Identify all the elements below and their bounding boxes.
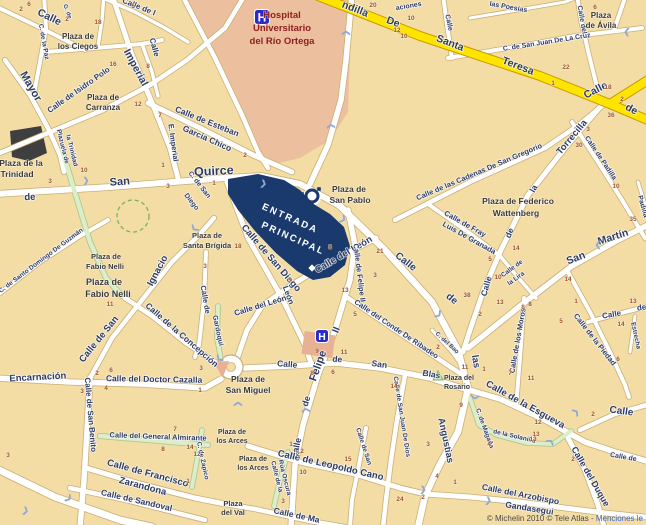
house-number: 3	[166, 183, 170, 190]
house-number: 18	[234, 243, 242, 250]
house-number: 2	[478, 311, 482, 318]
map-attribution: © Michelin 2010 © Tele Atlas - Menciones…	[487, 514, 643, 523]
plaza-label: Plaza	[591, 11, 612, 20]
house-number: 9	[459, 402, 463, 409]
plaza-label: San Miguel	[226, 385, 271, 395]
house-number: 11	[462, 364, 469, 371]
house-number: 11	[341, 349, 348, 356]
plaza-label: Plaza de	[87, 93, 120, 102]
house-number: 16	[109, 61, 117, 68]
house-number: 6	[331, 369, 335, 376]
house-number: 6	[593, 4, 597, 11]
house-number: 8	[310, 370, 314, 377]
plaza-label: Plaza de	[62, 32, 95, 41]
house-number: 8	[528, 301, 532, 308]
house-number: 3	[281, 498, 285, 505]
oneway-arrow-icon: ❯	[83, 176, 90, 186]
plaza-label: los Arces	[216, 438, 247, 445]
house-number: 14	[390, 383, 398, 390]
plaza-label: Fabio Nelli	[86, 262, 124, 271]
house-number: 18	[604, 84, 612, 91]
house-number: 9	[315, 348, 319, 355]
house-number: 36	[607, 112, 615, 119]
house-number: 14	[512, 245, 520, 252]
plaza-label: Plaza de la	[0, 158, 43, 168]
house-number: 2	[300, 448, 304, 455]
house-number: 1	[186, 478, 190, 485]
house-number: 1	[212, 180, 216, 187]
house-number: 13	[496, 299, 504, 306]
house-number: 1	[482, 366, 486, 373]
plaza-label: Plaza de	[86, 277, 122, 287]
hospital-icon: H	[316, 330, 329, 343]
plaza-label: Plaza de	[332, 184, 366, 194]
oneway-arrow-icon: ❯	[419, 485, 427, 496]
house-number: 2	[571, 456, 575, 463]
house-number: 2	[436, 344, 440, 351]
house-number: 35	[629, 216, 637, 223]
house-number: 6	[109, 367, 113, 374]
house-number: 18	[94, 19, 102, 26]
house-number: 7	[173, 426, 177, 433]
house-number: 10	[299, 469, 307, 476]
street-label: de	[636, 302, 646, 313]
house-number: 7	[288, 278, 292, 285]
house-number: 13	[629, 298, 637, 305]
house-number: 1	[161, 162, 165, 169]
house-number: 11	[107, 301, 114, 308]
oneway-arrow-icon: ❯	[233, 401, 243, 408]
oneway-arrow-icon: ❯	[326, 122, 337, 130]
house-number: 12	[534, 419, 542, 426]
house-number: 15	[344, 456, 352, 463]
oneway-arrow-icon: ❯	[595, 240, 602, 250]
house-number: 3	[373, 272, 377, 279]
house-number: 1	[574, 298, 578, 305]
house-number: 2	[19, 6, 23, 13]
street-label: de	[24, 192, 36, 204]
legal-link[interactable]: Menciones le	[596, 514, 643, 523]
house-number: 14	[564, 276, 572, 283]
plaza-label: Carranza	[86, 103, 121, 112]
house-number: 22	[562, 64, 570, 71]
oneway-arrow-icon: ❯	[623, 27, 631, 38]
house-number: 4	[104, 385, 108, 392]
house-number: 2	[243, 152, 247, 159]
house-number: 10	[612, 183, 620, 190]
plaza-label: Santa Brígida	[183, 241, 232, 250]
plaza-label: Rosario	[444, 384, 470, 391]
house-number: 2	[421, 494, 425, 501]
house-number: 10	[400, 33, 408, 40]
oneway-arrow-icon: ❯	[341, 30, 351, 37]
house-number: 3	[6, 452, 10, 459]
plaza-label: Plaza del	[444, 375, 474, 382]
plaza-label: Plaza	[223, 499, 243, 508]
house-number: 20	[369, 2, 377, 9]
house-number: 5	[488, 256, 492, 263]
map-canvas[interactable]: HH CalleC. de la PazG. deCalle de ICalle…	[0, 0, 646, 525]
house-number: 6	[616, 356, 620, 363]
oneway-arrow-icon: ❯	[470, 393, 481, 401]
house-number: 14	[186, 444, 194, 451]
street-label: las	[469, 354, 482, 369]
house-number: 3	[80, 388, 84, 395]
copyright-text: © Michelin 2010 © Tele Atlas -	[487, 514, 596, 523]
house-number: 7	[158, 112, 162, 119]
house-number: 10	[407, 15, 415, 22]
oneway-arrow-icon: ❯	[301, 406, 312, 414]
house-number: 8	[328, 244, 332, 251]
svg-text:H: H	[318, 332, 326, 343]
house-number: 4	[435, 473, 439, 480]
house-number: 14	[617, 321, 625, 328]
house-number: 3	[48, 178, 52, 185]
house-number: 3	[426, 441, 430, 448]
plaza-label: los Arces	[237, 465, 268, 472]
house-number: 11	[528, 375, 535, 382]
house-number: 2	[65, 16, 69, 23]
plaza-label: San Pablo	[329, 195, 370, 205]
plaza-label: Trinidad	[0, 169, 33, 179]
house-number: 8	[161, 446, 165, 453]
house-number: 8	[146, 63, 150, 70]
house-number: 1	[551, 80, 555, 87]
plaza-label: Plaza de	[91, 252, 121, 261]
house-number: 1	[289, 441, 293, 448]
house-number: 5	[353, 311, 357, 318]
street-label: San	[109, 175, 130, 188]
house-number: 38	[463, 292, 471, 299]
street-label: Calle	[277, 358, 298, 370]
hospital-name: Universitario	[253, 23, 311, 34]
house-number: 8	[521, 304, 525, 311]
house-number: 3	[586, 126, 590, 133]
house-number: 30	[575, 142, 583, 149]
house-number: 12	[193, 451, 201, 458]
house-number: 3	[199, 365, 203, 372]
house-number: 13	[341, 287, 349, 294]
house-number: 6	[27, 1, 31, 8]
plaza-label: del Val	[221, 508, 245, 517]
house-number: 3	[203, 263, 207, 270]
house-number: 5	[131, 3, 135, 10]
house-number: 21	[376, 248, 384, 255]
hospital-name: Hospital	[263, 10, 300, 21]
house-number: 5	[559, 318, 563, 325]
street-label: Calle del Doctor Cazalla	[106, 373, 203, 385]
house-number: 1	[198, 387, 202, 394]
plaza-label: Fabio Nelli	[85, 289, 131, 299]
house-number: 2	[95, 370, 99, 377]
house-number: 10	[80, 167, 88, 174]
street-label: Quirce	[194, 163, 234, 179]
plaza-label: Wattenberg	[493, 208, 539, 218]
house-number: 13	[529, 436, 537, 443]
hospital-name: del Río Ortega	[250, 36, 316, 47]
plaza-label: Plaza de Federico	[482, 196, 554, 206]
plaza-label: los Ciegos	[58, 42, 99, 51]
city-map: HH CalleC. de la PazG. deCalle de ICalle…	[0, 0, 646, 525]
plaza-label: Plaza de	[239, 456, 267, 463]
house-number: 24	[396, 496, 404, 503]
house-number: 2	[620, 96, 624, 103]
house-number: 7	[508, 370, 512, 377]
house-number: 2	[591, 411, 595, 418]
house-number: 12	[134, 101, 142, 108]
house-number: 1	[453, 479, 457, 486]
plaza-label: Plaza de	[218, 429, 246, 436]
plaza-label: Plaza de	[231, 374, 265, 384]
house-number: 10	[494, 274, 502, 281]
plaza-label: de Ávila	[586, 21, 617, 30]
house-number: 4	[487, 441, 491, 448]
